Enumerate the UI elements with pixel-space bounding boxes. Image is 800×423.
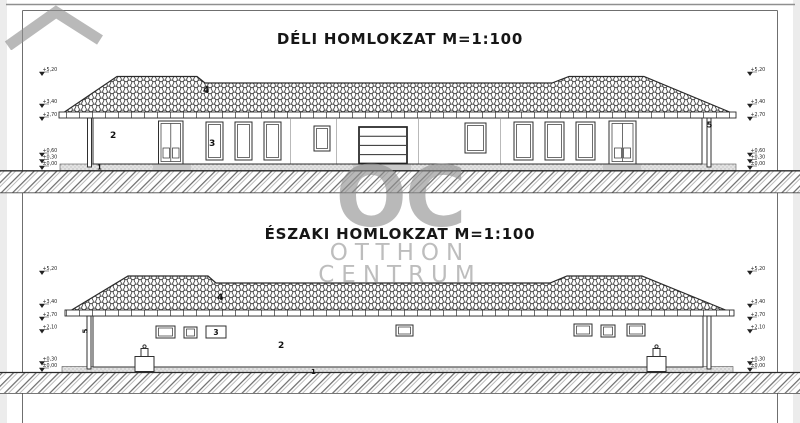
svg-text:+3,40: +3,40: [751, 299, 766, 305]
north-level-markers-left: +5,20 +3,40 +2,70 +2,10 +0,30 ±0,00: [39, 266, 57, 372]
svg-text:+5,20: +5,20: [43, 266, 58, 272]
svg-text:+2,70: +2,70: [43, 312, 58, 318]
svg-text:+2,70: +2,70: [751, 112, 766, 118]
north-post-left: [87, 316, 91, 369]
south-label-post: 5: [707, 121, 713, 130]
north-level-markers-right: +5,20 +3,40 +2,70 +2,10 +0,30 ±0,00: [747, 266, 765, 372]
north-elevation: 1 2 3 4 5 +5,20 +3,40 +2,70 +2,10 +0,30 …: [0, 266, 800, 394]
south-eave: [59, 112, 736, 118]
south-post-left: [88, 118, 92, 167]
north-label-post: 5: [82, 328, 90, 333]
south-label-window: 3: [209, 139, 215, 149]
north-label-wall: 2: [278, 341, 284, 351]
svg-text:+2,70: +2,70: [43, 112, 58, 118]
south-label-ground: 1: [97, 164, 102, 172]
svg-text:+0,30: +0,30: [43, 154, 58, 160]
svg-text:+5,20: +5,20: [751, 67, 766, 73]
svg-text:+2,70: +2,70: [751, 312, 766, 318]
svg-text:+0,30: +0,30: [43, 356, 58, 362]
north-wall: [93, 316, 703, 367]
svg-text:+0,30: +0,30: [751, 154, 766, 160]
svg-text:±0,00: ±0,00: [751, 363, 766, 369]
svg-text:+2,10: +2,10: [43, 324, 58, 330]
svg-text:±0,00: ±0,00: [43, 161, 58, 167]
north-ground-hatch: [0, 373, 800, 393]
north-elevation-title: ÉSZAKI HOMLOKZAT M=1:100: [0, 225, 800, 243]
north-label-ground: 1: [311, 368, 316, 376]
svg-text:+3,40: +3,40: [43, 99, 58, 105]
north-label-window: 3: [213, 328, 218, 337]
drawing-sheet: 1 2 3 4 5 +5,20 +3,40 +2,70 +0,60 +0,30 …: [0, 0, 800, 423]
south-ground-hatch: [0, 172, 800, 193]
svg-text:±0,00: ±0,00: [751, 161, 766, 167]
elevation-drawings: 1 2 3 4 5 +5,20 +3,40 +2,70 +0,60 +0,30 …: [0, 0, 800, 423]
svg-text:+0,30: +0,30: [751, 356, 766, 362]
svg-text:+0,60: +0,60: [43, 148, 58, 154]
south-elevation-title: DÉLI HOMLOKZAT M=1:100: [0, 30, 800, 48]
svg-text:+3,40: +3,40: [751, 99, 766, 105]
svg-text:+5,20: +5,20: [43, 67, 58, 73]
north-roof: [70, 276, 728, 311]
south-door-right: [609, 121, 636, 164]
svg-text:+3,40: +3,40: [43, 299, 58, 305]
svg-text:+0,60: +0,60: [751, 148, 766, 154]
south-label-wall: 2: [110, 131, 116, 141]
south-elevation: 1 2 3 4 5 +5,20 +3,40 +2,70 +0,60 +0,30 …: [0, 67, 800, 193]
north-post-right: [707, 316, 711, 369]
south-garage-door: [359, 127, 407, 164]
north-eave: [65, 310, 734, 316]
south-label-roof: 4: [203, 86, 209, 96]
south-door-left: [159, 121, 184, 164]
svg-text:+5,20: +5,20: [751, 266, 766, 272]
south-level-markers-left: +5,20 +3,40 +2,70 +0,60 +0,30 ±0,00: [39, 67, 57, 170]
south-level-markers-right: +5,20 +3,40 +2,70 +0,60 +0,30 ±0,00: [747, 67, 765, 170]
svg-text:+2,10: +2,10: [751, 324, 766, 330]
north-label-roof: 4: [217, 293, 223, 303]
svg-text:±0,00: ±0,00: [43, 363, 58, 369]
south-roof: [63, 77, 732, 114]
